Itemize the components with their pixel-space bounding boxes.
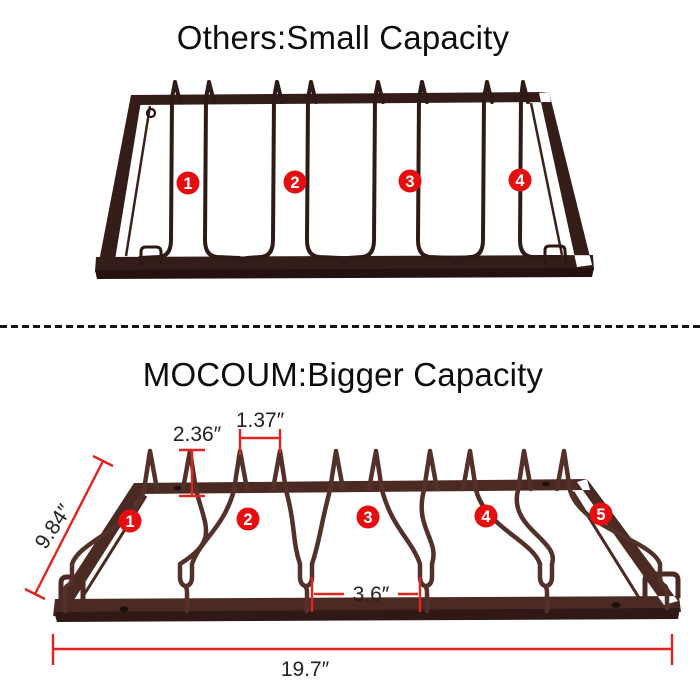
dimension-label: 1.37″	[236, 409, 285, 432]
marker-number: 2	[290, 174, 299, 192]
marker-number: 1	[183, 175, 192, 193]
dimension-label: 2.36″	[173, 423, 222, 446]
dimension-label: 19.7″	[281, 658, 330, 681]
product-comparison-image: { "top_section": { "title": "Others:Smal…	[0, 0, 700, 700]
slot-marker: 3	[399, 170, 422, 193]
section-divider	[0, 325, 700, 328]
marker-number: 3	[363, 509, 372, 527]
marker-number: 4	[515, 172, 525, 190]
marker-number: 4	[481, 508, 491, 526]
screw-hole	[174, 486, 182, 491]
slot-marker: 3	[357, 506, 380, 529]
screw-hole	[542, 482, 550, 487]
slot-marker: 2	[284, 171, 307, 194]
glass-rail-wires	[140, 82, 560, 263]
slot-marker: 1	[119, 510, 142, 533]
dimension-label: 3.6″	[353, 583, 390, 606]
competitor-rack-photo: 1 2 3 4	[0, 70, 700, 290]
screw-hole	[612, 602, 621, 607]
screw-hole	[120, 606, 129, 611]
slot-marker: 1	[177, 172, 200, 195]
marker-number: 2	[243, 511, 252, 529]
mocoum-title: MOCOUM:Bigger Capacity	[0, 358, 686, 391]
competitor-title: Others:Small Capacity	[0, 21, 686, 54]
marker-number: 5	[596, 506, 605, 524]
dimension-line	[53, 634, 672, 665]
marker-number: 3	[405, 173, 414, 191]
dimension-line	[240, 429, 280, 455]
dimension-length: 19.7″	[53, 634, 672, 681]
mocoum-rack-photo: 1 2 3 4 5 2.36″ 1.37″ 9.84″ 3.6″ 19.7″	[0, 395, 700, 690]
dimension-prong-gap: 1.37″	[236, 409, 285, 455]
slot-marker: 4	[475, 505, 498, 528]
slot-marker: 4	[509, 169, 532, 192]
slot-marker: 5	[590, 503, 613, 526]
marker-number: 1	[125, 513, 134, 531]
slot-marker: 2	[237, 508, 260, 531]
